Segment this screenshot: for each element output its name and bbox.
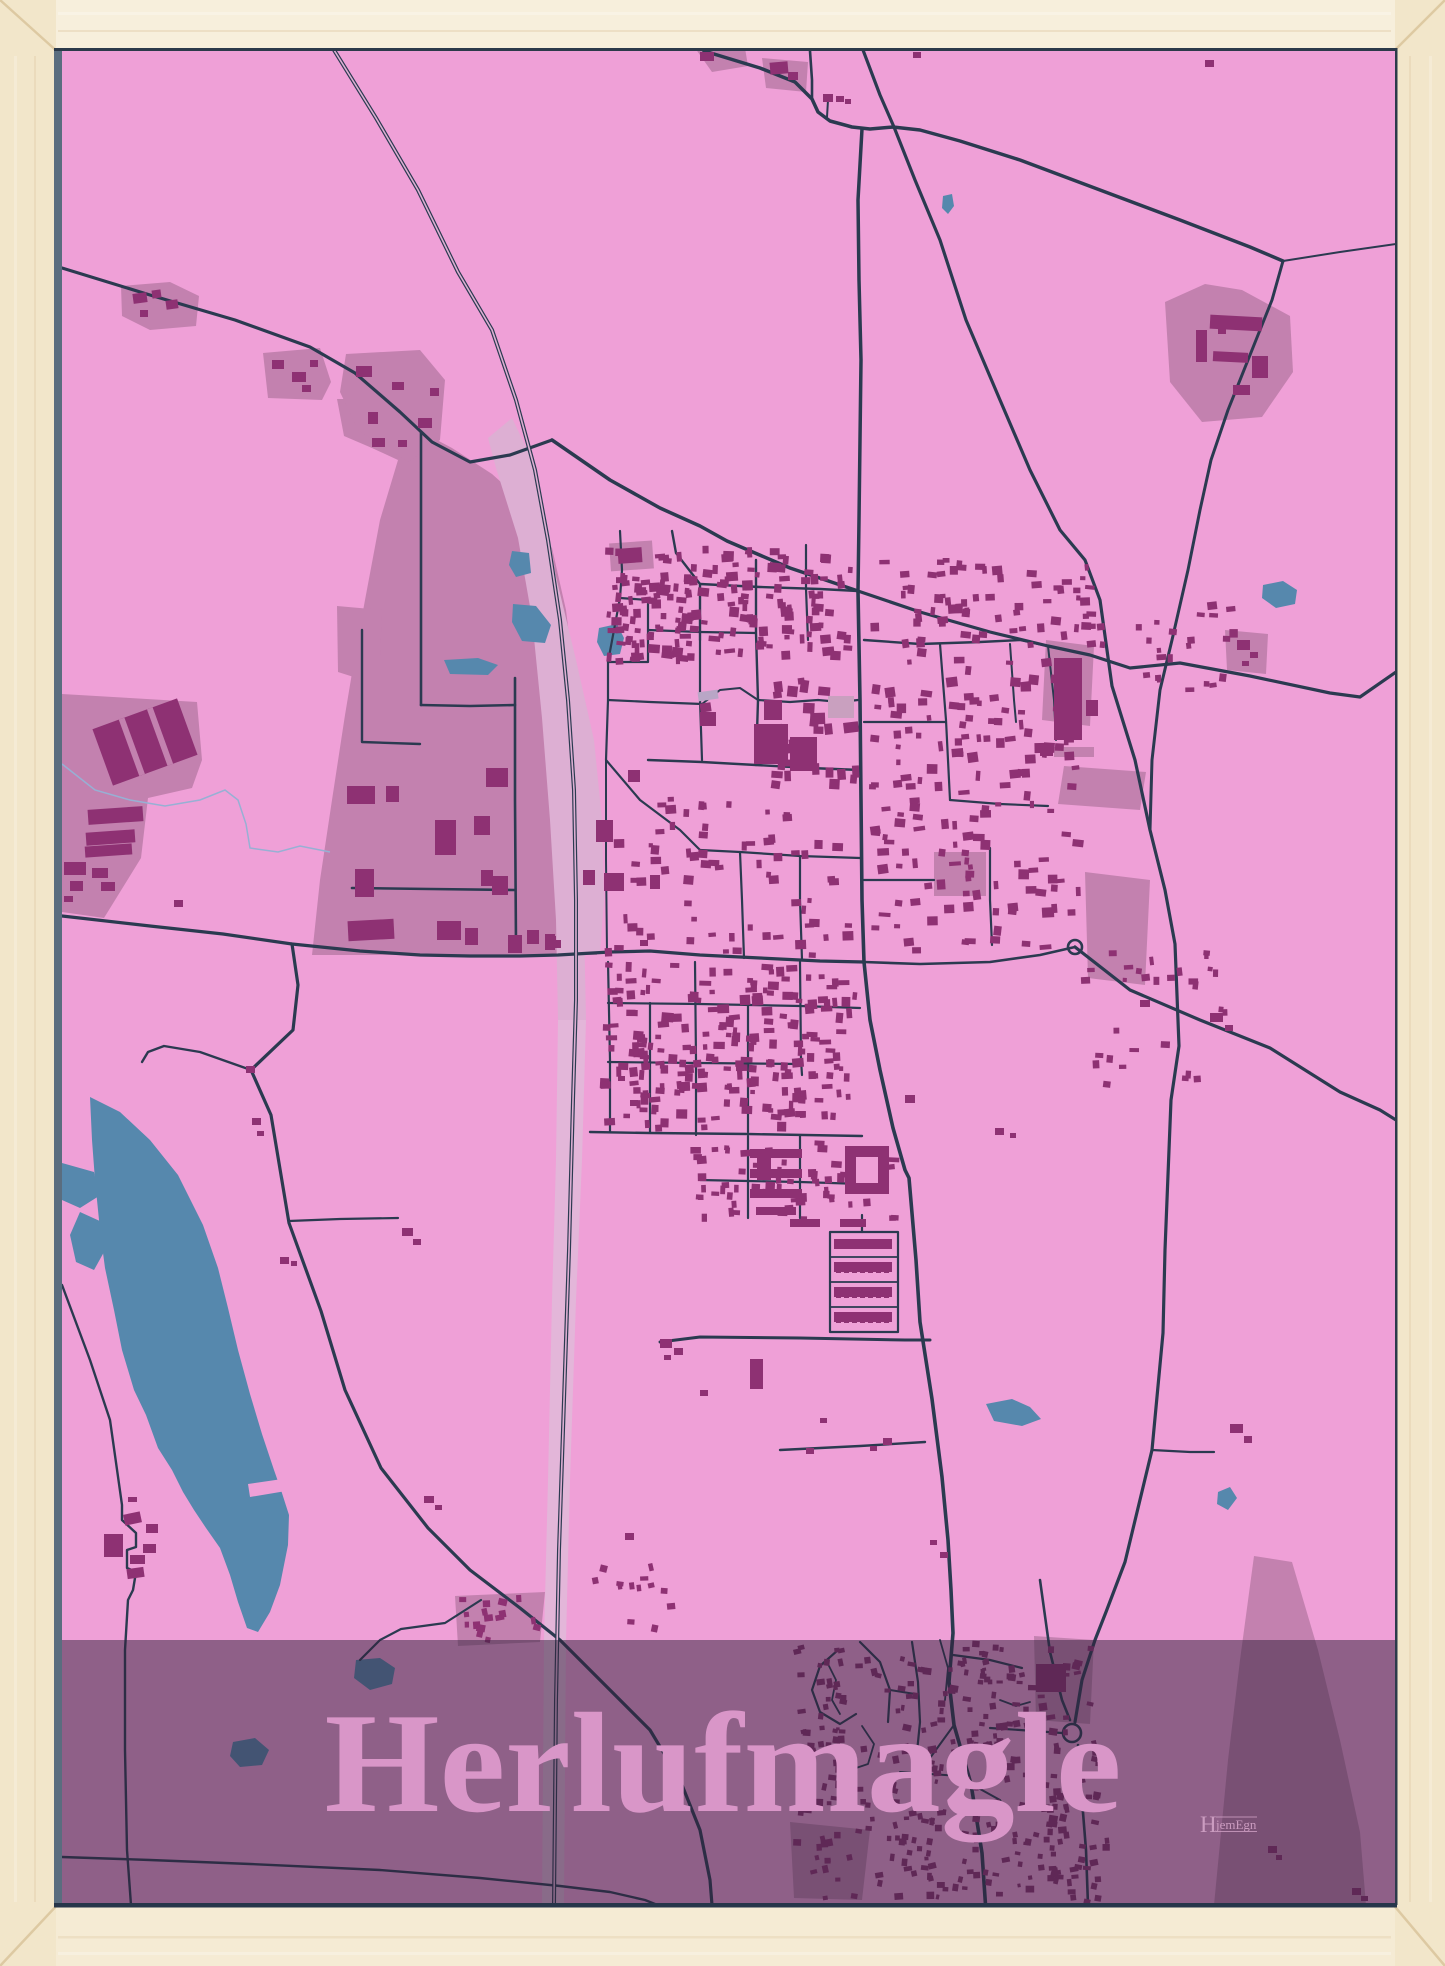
- svg-text:Herlufmagle: Herlufmagle: [325, 1684, 1122, 1843]
- svg-text:jemEgn: jemEgn: [1215, 1817, 1257, 1832]
- svg-text:H: H: [1200, 1812, 1217, 1837]
